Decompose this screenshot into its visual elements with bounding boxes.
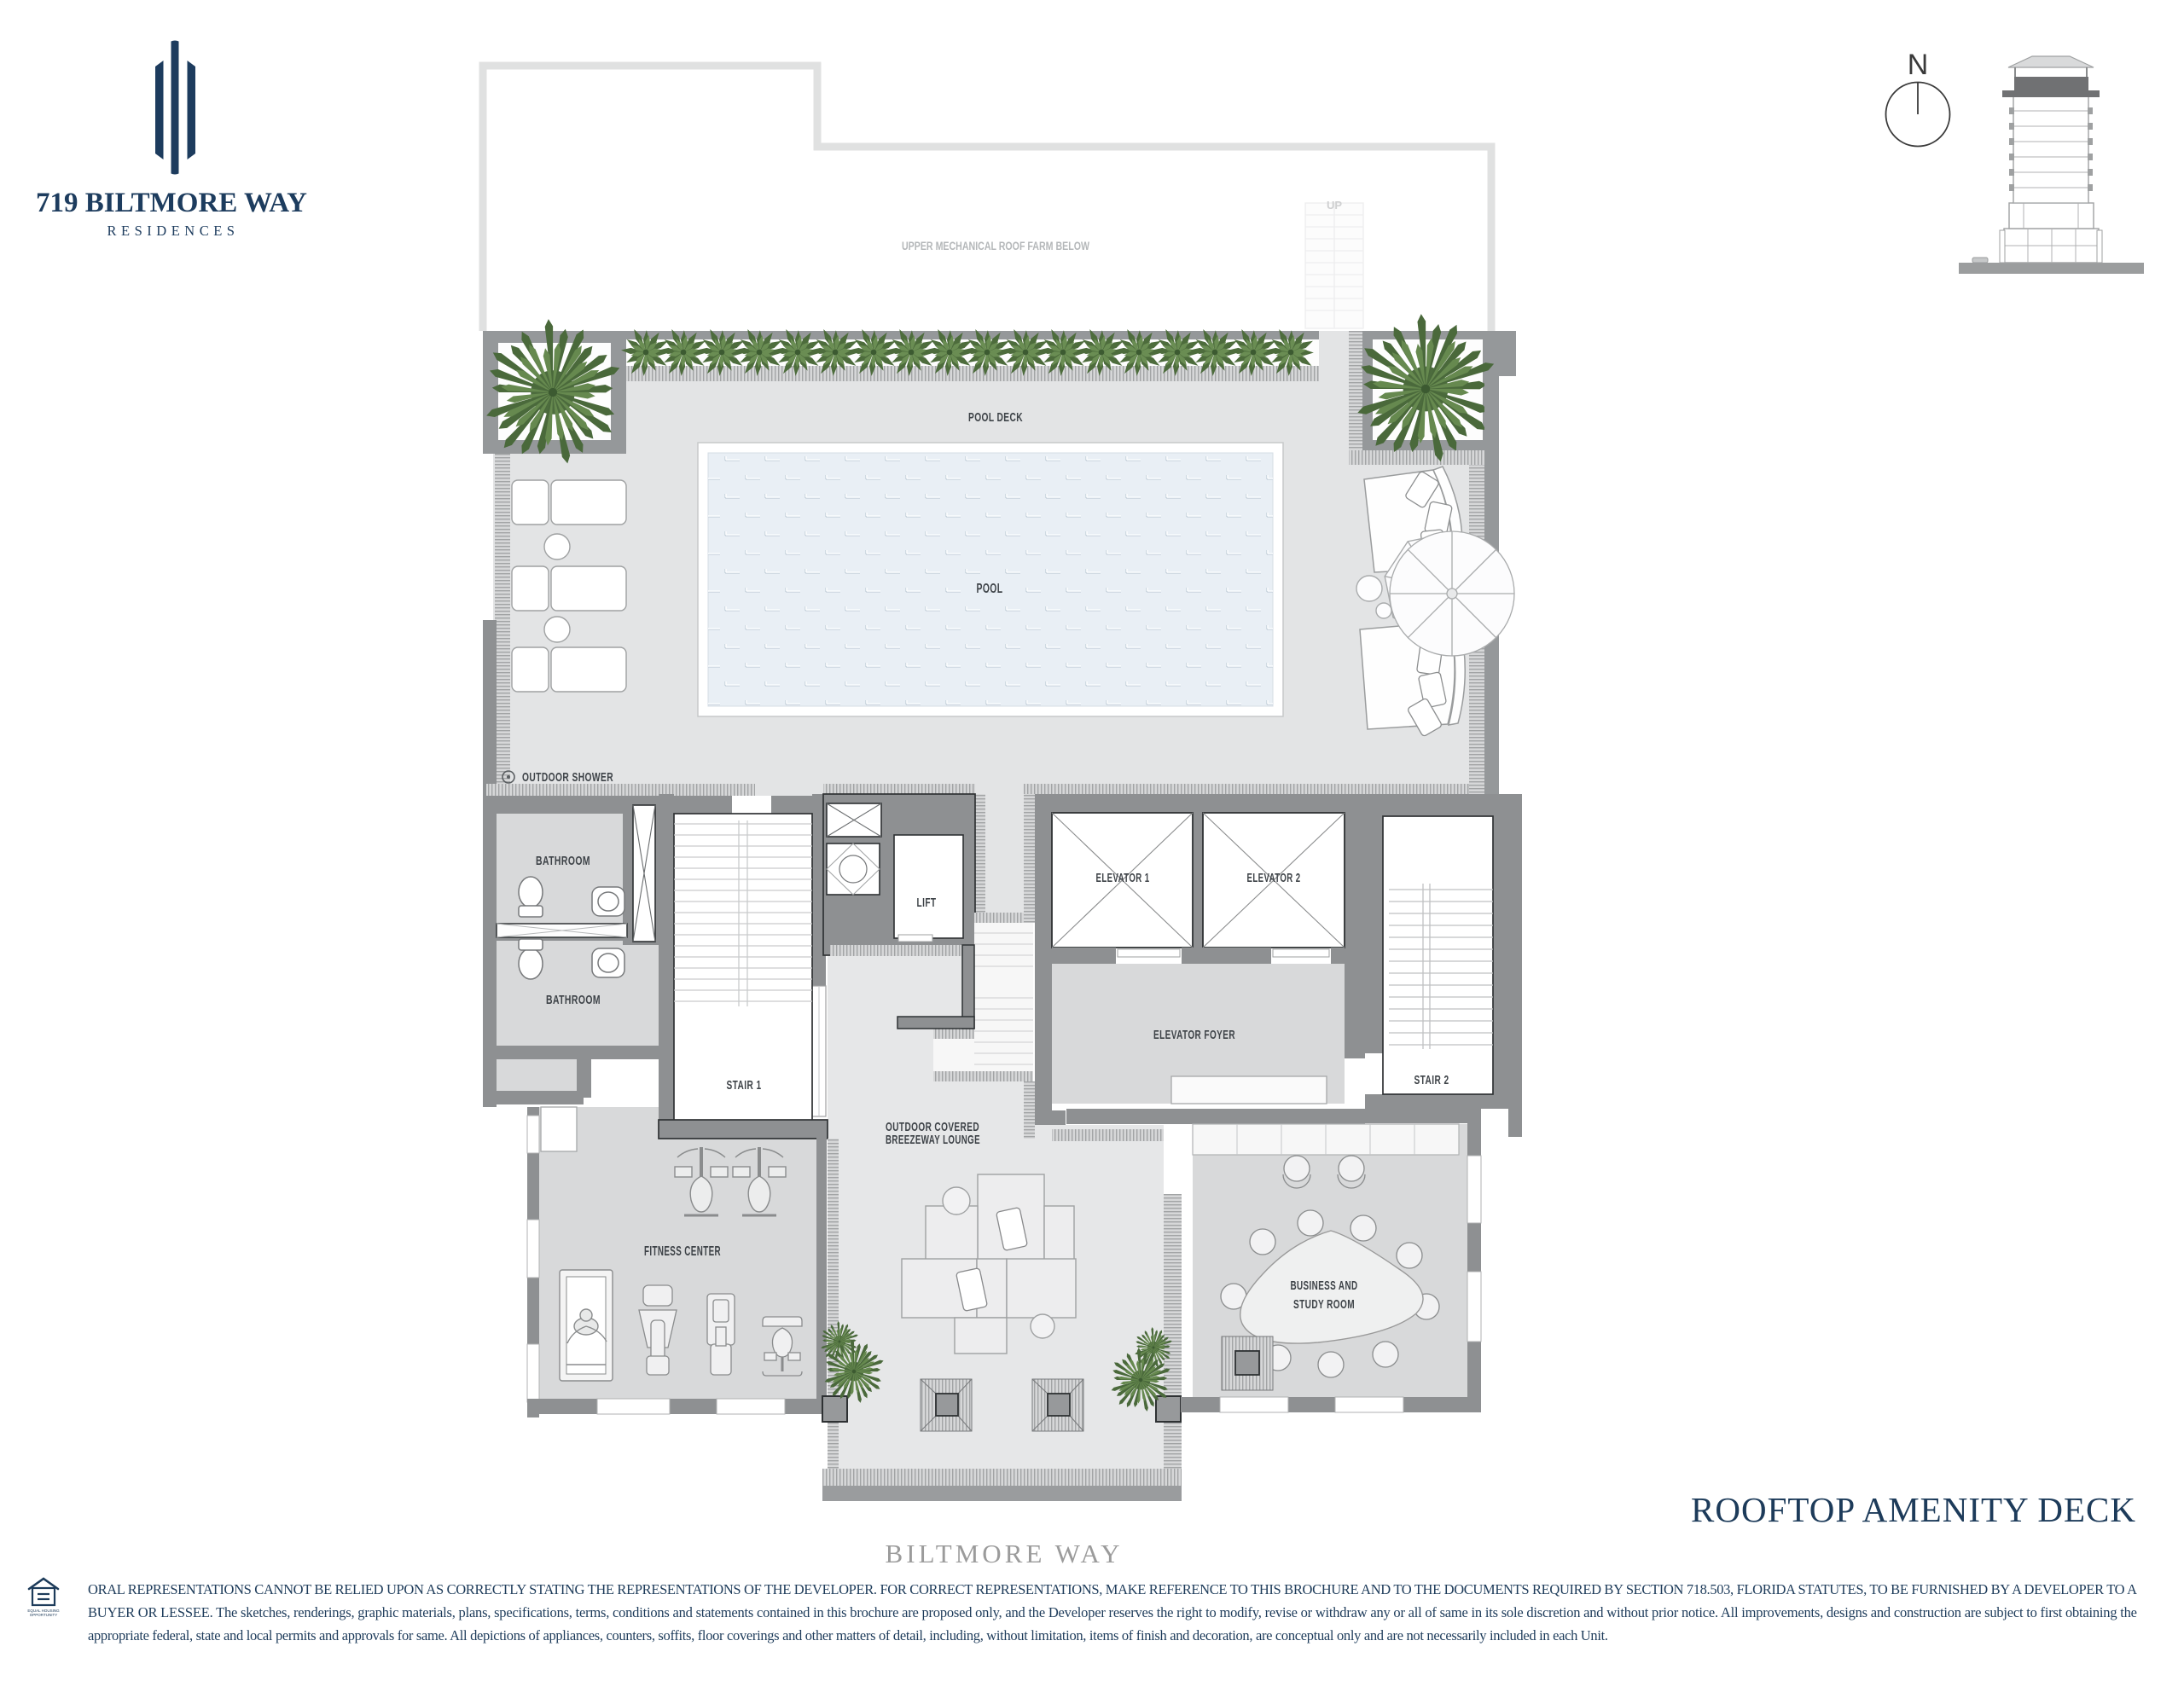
svg-text:FITNESS CENTER: FITNESS CENTER	[644, 1244, 721, 1259]
svg-text:ELEVATOR FOYER: ELEVATOR FOYER	[1153, 1029, 1235, 1042]
svg-text:719 BILTMORE WAY: 719 BILTMORE WAY	[36, 188, 307, 218]
svg-text:appropriate federal, state and: appropriate federal, state and local per…	[88, 1627, 1608, 1644]
svg-text:POOL DECK: POOL DECK	[968, 410, 1023, 425]
svg-text:RESIDENCES: RESIDENCES	[107, 223, 240, 239]
svg-text:STAIR 1: STAIR 1	[727, 1079, 762, 1093]
svg-text:ROOFTOP AMENITY DECK: ROOFTOP AMENITY DECK	[1691, 1490, 2135, 1529]
svg-text:STAIR 2: STAIR 2	[1414, 1074, 1449, 1087]
svg-text:POOL: POOL	[977, 582, 1003, 596]
svg-text:BUYER OR LESSEE. The sketches,: BUYER OR LESSEE. The sketches, rendering…	[88, 1604, 2137, 1620]
svg-text:UP: UP	[1327, 199, 1342, 212]
svg-text:UPPER MECHANICAL ROOF FARM BEL: UPPER MECHANICAL ROOF FARM BELOW	[902, 240, 1089, 252]
svg-text:ELEVATOR 2: ELEVATOR 2	[1247, 872, 1301, 885]
svg-text:N: N	[1908, 49, 1929, 81]
svg-text:OUTDOOR SHOWER: OUTDOOR SHOWER	[522, 770, 613, 785]
svg-text:LIFT: LIFT	[917, 896, 937, 910]
svg-text:BUSINESS AND: BUSINESS AND	[1291, 1278, 1358, 1293]
svg-text:BREEZEWAY LOUNGE: BREEZEWAY LOUNGE	[886, 1133, 980, 1147]
svg-text:ORAL REPRESENTATIONS CANNOT BE: ORAL REPRESENTATIONS CANNOT BE RELIED UP…	[88, 1581, 2137, 1597]
svg-text:BILTMORE WAY: BILTMORE WAY	[886, 1539, 1125, 1568]
svg-text:BATHROOM: BATHROOM	[536, 855, 590, 868]
svg-text:BATHROOM: BATHROOM	[546, 994, 601, 1007]
svg-text:OPPORTUNITY: OPPORTUNITY	[30, 1613, 57, 1617]
svg-text:STUDY ROOM: STUDY ROOM	[1293, 1297, 1355, 1312]
svg-text:ELEVATOR 1: ELEVATOR 1	[1096, 872, 1150, 885]
